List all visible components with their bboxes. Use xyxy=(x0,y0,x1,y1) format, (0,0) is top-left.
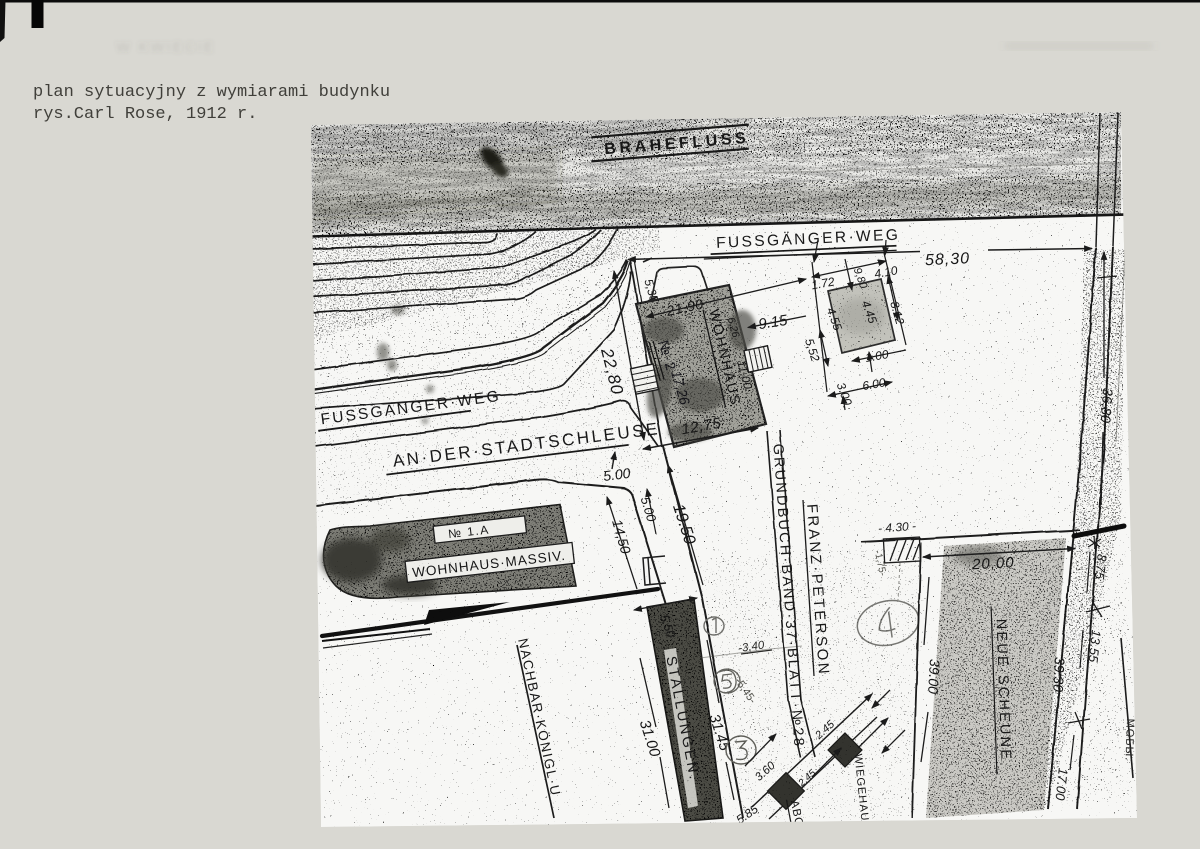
svg-text:W KWIECIE: W KWIECIE xyxy=(116,39,216,56)
svg-text:39.00: 39.00 xyxy=(925,659,943,695)
svg-text:20,00: 20,00 xyxy=(971,554,1015,573)
svg-text:36,80: 36,80 xyxy=(1098,387,1116,423)
svg-text:MОБЫ.: MОБЫ. xyxy=(1122,718,1135,761)
svg-text:rys.Carl Rose, 1912 r.: rys.Carl Rose, 1912 r. xyxy=(33,105,257,124)
svg-text:plan sytuacyjny z wymiarami bu: plan sytuacyjny z wymiarami budynku xyxy=(33,83,390,102)
